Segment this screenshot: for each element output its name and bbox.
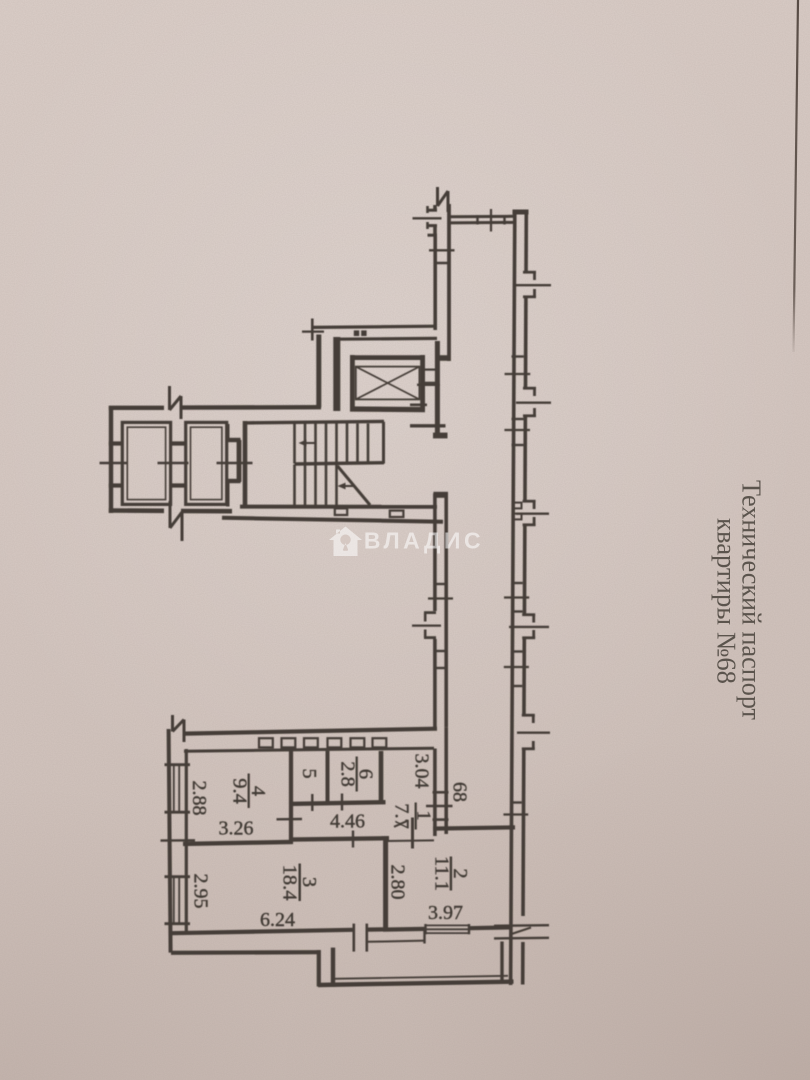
svg-text:2.8: 2.8 [337, 761, 359, 787]
svg-text:2.80: 2.80 [387, 865, 409, 900]
svg-text:11.1: 11.1 [431, 856, 453, 891]
svg-text:2.95: 2.95 [190, 874, 212, 909]
svg-text:5: 5 [298, 768, 320, 778]
svg-text:18.4: 18.4 [279, 865, 301, 901]
svg-text:3.26: 3.26 [219, 818, 254, 840]
svg-text:квартиры №68: квартиры №68 [712, 518, 742, 684]
svg-text:ВЛАДИС: ВЛАДИС [364, 528, 484, 554]
svg-text:3.97: 3.97 [428, 902, 463, 924]
svg-text:6.24: 6.24 [260, 909, 295, 931]
svg-text:68: 68 [449, 782, 471, 802]
svg-text:4.46: 4.46 [330, 811, 365, 833]
svg-text:9.4: 9.4 [229, 778, 251, 804]
svg-text:2.88: 2.88 [188, 781, 210, 816]
svg-text:7.7: 7.7 [391, 803, 413, 829]
svg-text:3.04: 3.04 [411, 754, 433, 789]
